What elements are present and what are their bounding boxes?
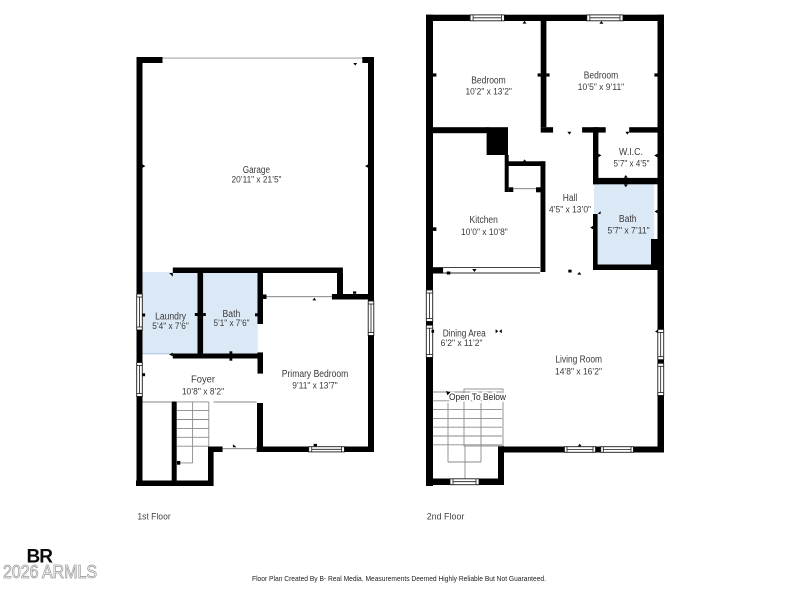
svg-text:Foyer: Foyer [191, 375, 216, 386]
svg-text:W.I.C.: W.I.C. [619, 147, 643, 158]
svg-text:10’0" x 10’8": 10’0" x 10’8" [461, 227, 508, 237]
svg-text:Open To Below: Open To Below [449, 392, 506, 402]
svg-text:5’7" x 4’5": 5’7" x 4’5" [614, 159, 650, 169]
svg-text:10’5" x 9’11": 10’5" x 9’11" [578, 82, 624, 92]
svg-text:Floor Plan Created By B- Real: Floor Plan Created By B- Real Media. Mea… [252, 574, 546, 583]
svg-text:1st Floor: 1st Floor [137, 512, 170, 523]
svg-text:5’4" x 7’6": 5’4" x 7’6" [152, 321, 189, 331]
svg-text:9’11" x 13’7": 9’11" x 13’7" [292, 381, 338, 391]
svg-text:4’5" x 13’0": 4’5" x 13’0" [549, 205, 591, 215]
svg-text:10’8" x 8’2": 10’8" x 8’2" [182, 387, 224, 397]
svg-text:Bath: Bath [619, 214, 637, 225]
svg-text:5’7" x 7’11": 5’7" x 7’11" [608, 226, 650, 236]
svg-text:Primary Bedroom: Primary Bedroom [282, 369, 349, 380]
svg-text:Bedroom: Bedroom [584, 71, 619, 82]
svg-text:20’11" x 21’5": 20’11" x 21’5" [232, 174, 282, 184]
svg-text:Hall: Hall [563, 193, 578, 204]
svg-text:Bedroom: Bedroom [471, 76, 506, 87]
svg-text:6’2" x 11’2": 6’2" x 11’2" [441, 338, 483, 348]
svg-text:Kitchen: Kitchen [470, 215, 498, 226]
svg-text:10’2" x 13’2": 10’2" x 13’2" [466, 86, 512, 96]
svg-text:2026 ARMLS: 2026 ARMLS [3, 562, 97, 582]
svg-text:5’1" x 7’6": 5’1" x 7’6" [213, 318, 249, 328]
svg-text:14’8" x 16’2": 14’8" x 16’2" [555, 367, 602, 377]
svg-text:2nd Floor: 2nd Floor [427, 512, 465, 523]
svg-text:Living Room: Living Room [555, 355, 602, 366]
